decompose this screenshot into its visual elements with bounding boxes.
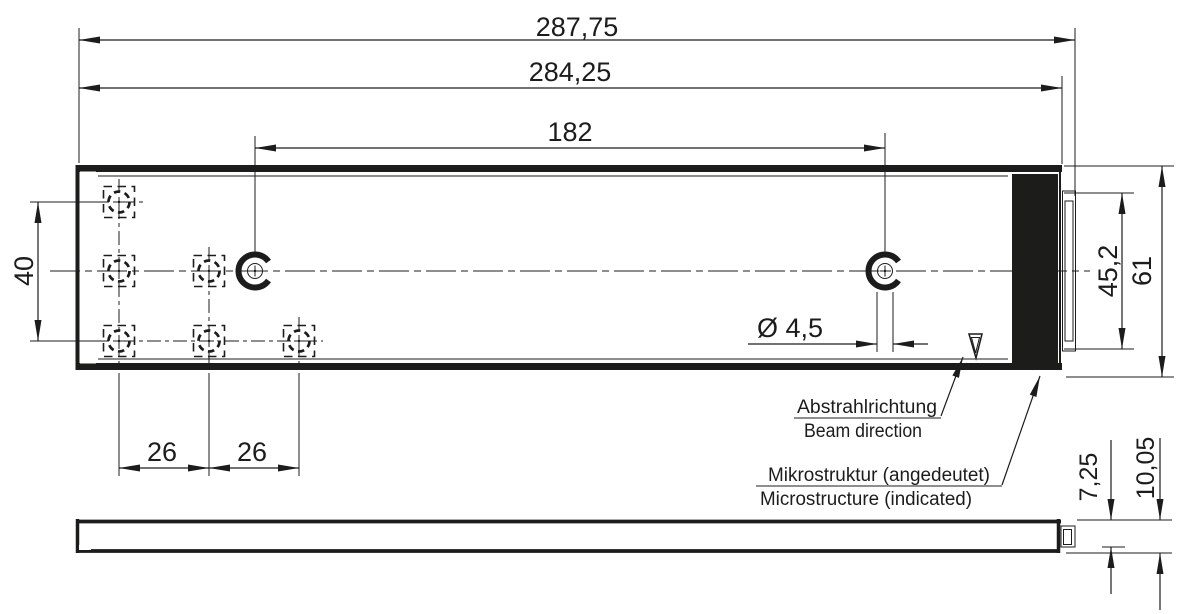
microstructure-area — [1012, 174, 1058, 364]
microstructure-label-de: Mikrostruktur (angedeutet) — [768, 465, 990, 486]
left-top-corner-step — [80, 172, 96, 178]
dimension-hole-row-spacing: 40 — [9, 202, 39, 341]
technical-drawing-canvas: 287,75 284,25 182 40 45,2 61 Ø 4,5 26 26… — [0, 0, 1188, 614]
dimension-window-height: 45,2 — [1093, 193, 1123, 349]
microstructure-label-en: Microstructure (indicated) — [760, 489, 972, 510]
dimension-body-length: 284,25 — [79, 57, 1062, 88]
side-view — [76, 519, 1075, 553]
top-view — [50, 165, 1090, 370]
dimension-value-hole-pitch-left: 26 — [147, 437, 177, 467]
mounting-hole — [194, 326, 225, 357]
dimension-value-total-depth: 10,05 — [1132, 437, 1160, 500]
dimension-value-total-height: 61 — [1127, 256, 1157, 286]
beam-direction-symbol — [969, 334, 982, 358]
dimension-total-height: 61 — [1127, 166, 1162, 377]
dimension-total-depth: 10,05 — [1132, 437, 1160, 610]
dimension-locating-hole-span: 182 — [255, 117, 885, 148]
dimension-value-hole-row-spacing: 40 — [9, 256, 39, 286]
dimension-value-locating-hole-diameter: Ø 4,5 — [757, 313, 823, 343]
extension-lines — [30, 28, 1174, 553]
technical-drawing-page: 287,75 284,25 182 40 45,2 61 Ø 4,5 26 26… — [0, 0, 1188, 614]
dimension-value-hole-pitch-right: 26 — [237, 437, 267, 467]
dimension-value-window-height: 45,2 — [1093, 245, 1123, 298]
side-view-left-step — [79, 545, 91, 550]
dimension-window-edge-depth: 7,25 — [1075, 440, 1111, 594]
dimension-locating-hole-diameter: Ø 4,5 — [748, 313, 928, 344]
dimension-value-overall-length: 287,75 — [536, 12, 619, 42]
dimension-value-window-edge-depth: 7,25 — [1075, 453, 1103, 502]
dimension-overall-length: 287,75 — [79, 12, 1075, 42]
dimension-value-body-length: 284,25 — [529, 57, 612, 87]
side-view-window-inner — [1064, 530, 1072, 545]
left-bottom-corner-step — [80, 358, 96, 364]
beam-direction-label-en: Beam direction — [804, 421, 922, 442]
beam-direction-label-de: Abstrahlrichtung — [797, 397, 937, 418]
dimension-value-locating-hole-span: 182 — [547, 117, 592, 147]
